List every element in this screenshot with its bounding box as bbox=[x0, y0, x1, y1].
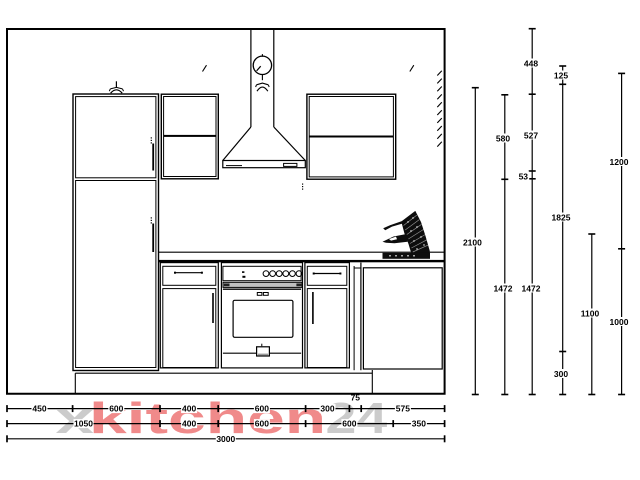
svg-text:300: 300 bbox=[554, 369, 568, 379]
svg-text:1100: 1100 bbox=[581, 309, 600, 319]
svg-text:600: 600 bbox=[342, 419, 356, 429]
svg-text:2100: 2100 bbox=[463, 238, 482, 248]
svg-text:1825: 1825 bbox=[552, 213, 571, 223]
svg-text:1472: 1472 bbox=[522, 284, 541, 294]
svg-text:kitchen: kitchen bbox=[89, 394, 326, 443]
svg-text:400: 400 bbox=[182, 419, 196, 429]
svg-text:1000: 1000 bbox=[610, 317, 629, 327]
svg-text:3000: 3000 bbox=[216, 434, 235, 444]
svg-text:527: 527 bbox=[524, 131, 538, 141]
svg-text:580: 580 bbox=[496, 134, 510, 144]
svg-text:300: 300 bbox=[320, 404, 334, 414]
svg-text:1472: 1472 bbox=[494, 284, 513, 294]
svg-text:600: 600 bbox=[255, 419, 269, 429]
svg-text:448: 448 bbox=[524, 59, 538, 69]
svg-text:125: 125 bbox=[554, 71, 568, 81]
svg-text:1050: 1050 bbox=[74, 419, 93, 429]
svg-text:400: 400 bbox=[182, 404, 196, 414]
svg-text:1200: 1200 bbox=[610, 157, 629, 167]
svg-text:600: 600 bbox=[109, 404, 123, 414]
svg-text:75: 75 bbox=[351, 393, 361, 403]
svg-text:350: 350 bbox=[412, 419, 426, 429]
svg-text:575: 575 bbox=[396, 404, 410, 414]
svg-text:450: 450 bbox=[32, 404, 46, 414]
svg-text:600: 600 bbox=[255, 404, 269, 414]
svg-text:53: 53 bbox=[519, 172, 529, 182]
